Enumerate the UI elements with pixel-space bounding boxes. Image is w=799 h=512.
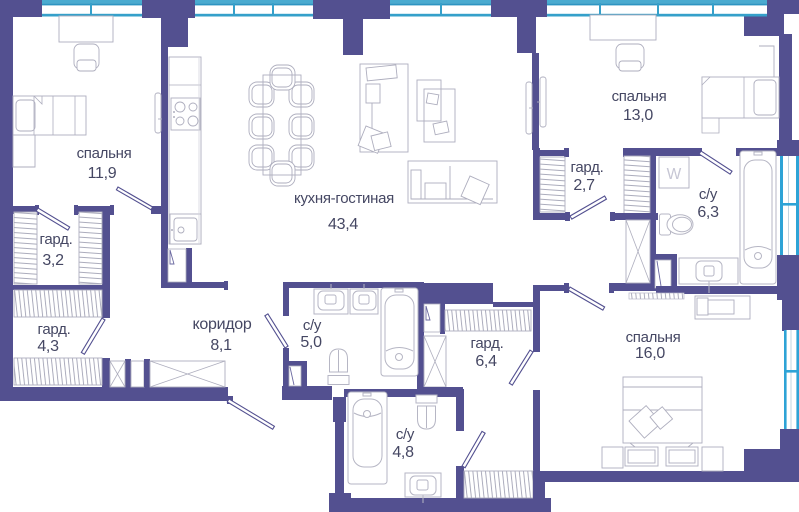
svg-text:4,8: 4,8	[392, 444, 414, 461]
svg-text:3,2: 3,2	[42, 252, 64, 269]
svg-text:спальня: спальня	[626, 329, 681, 346]
svg-text:2,7: 2,7	[573, 177, 595, 194]
svg-text:спальня: спальня	[612, 88, 667, 105]
svg-text:4,3: 4,3	[37, 338, 59, 355]
svg-text:с/у: с/у	[396, 426, 415, 443]
svg-text:с/у: с/у	[303, 317, 322, 334]
svg-text:спальня: спальня	[77, 145, 132, 162]
svg-text:с/у: с/у	[699, 186, 718, 203]
svg-text:16,0: 16,0	[635, 345, 665, 362]
svg-text:6,3: 6,3	[697, 204, 719, 221]
svg-text:гард.: гард.	[38, 321, 71, 338]
svg-text:13,0: 13,0	[623, 107, 653, 124]
svg-text:кухня-гостиная: кухня-гостиная	[294, 190, 394, 207]
svg-text:6,4: 6,4	[475, 353, 497, 370]
svg-text:коридор: коридор	[193, 316, 252, 333]
svg-text:8,1: 8,1	[210, 337, 232, 354]
svg-text:гард.: гард.	[471, 335, 504, 352]
svg-text:гард.: гард.	[40, 231, 73, 248]
svg-text:5,0: 5,0	[300, 334, 322, 351]
svg-text:гард.: гард.	[571, 159, 604, 176]
svg-text:11,9: 11,9	[88, 165, 117, 182]
svg-text:43,4: 43,4	[328, 216, 358, 233]
svg-text:W: W	[667, 166, 682, 183]
